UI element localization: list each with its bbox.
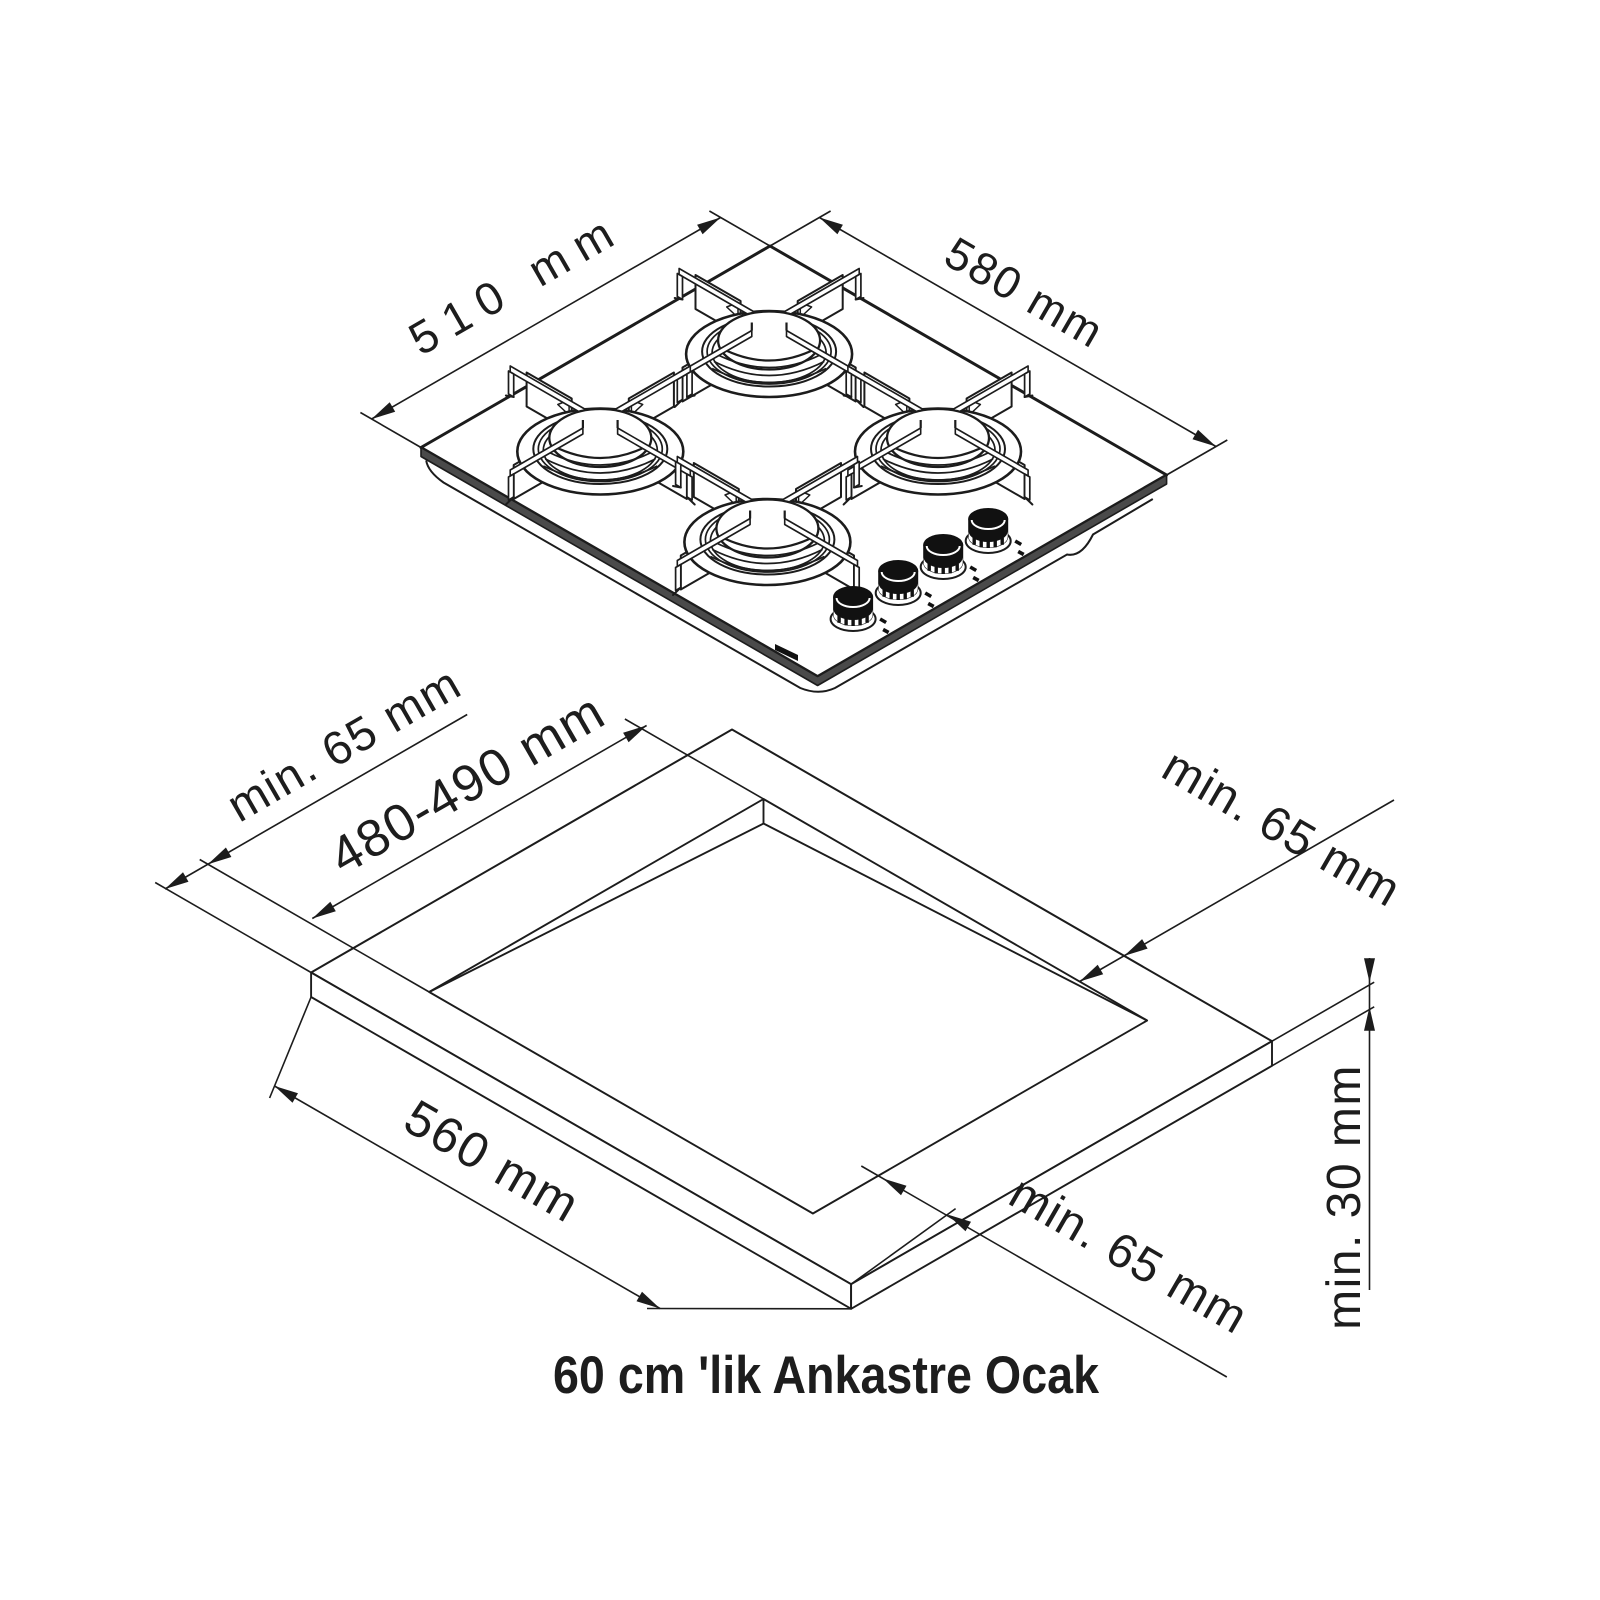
svg-text:60 cm 'lik Ankastre Ocak: 60 cm 'lik Ankastre Ocak bbox=[553, 1346, 1099, 1405]
svg-text:min. 30 mm: min. 30 mm bbox=[1318, 1064, 1371, 1330]
